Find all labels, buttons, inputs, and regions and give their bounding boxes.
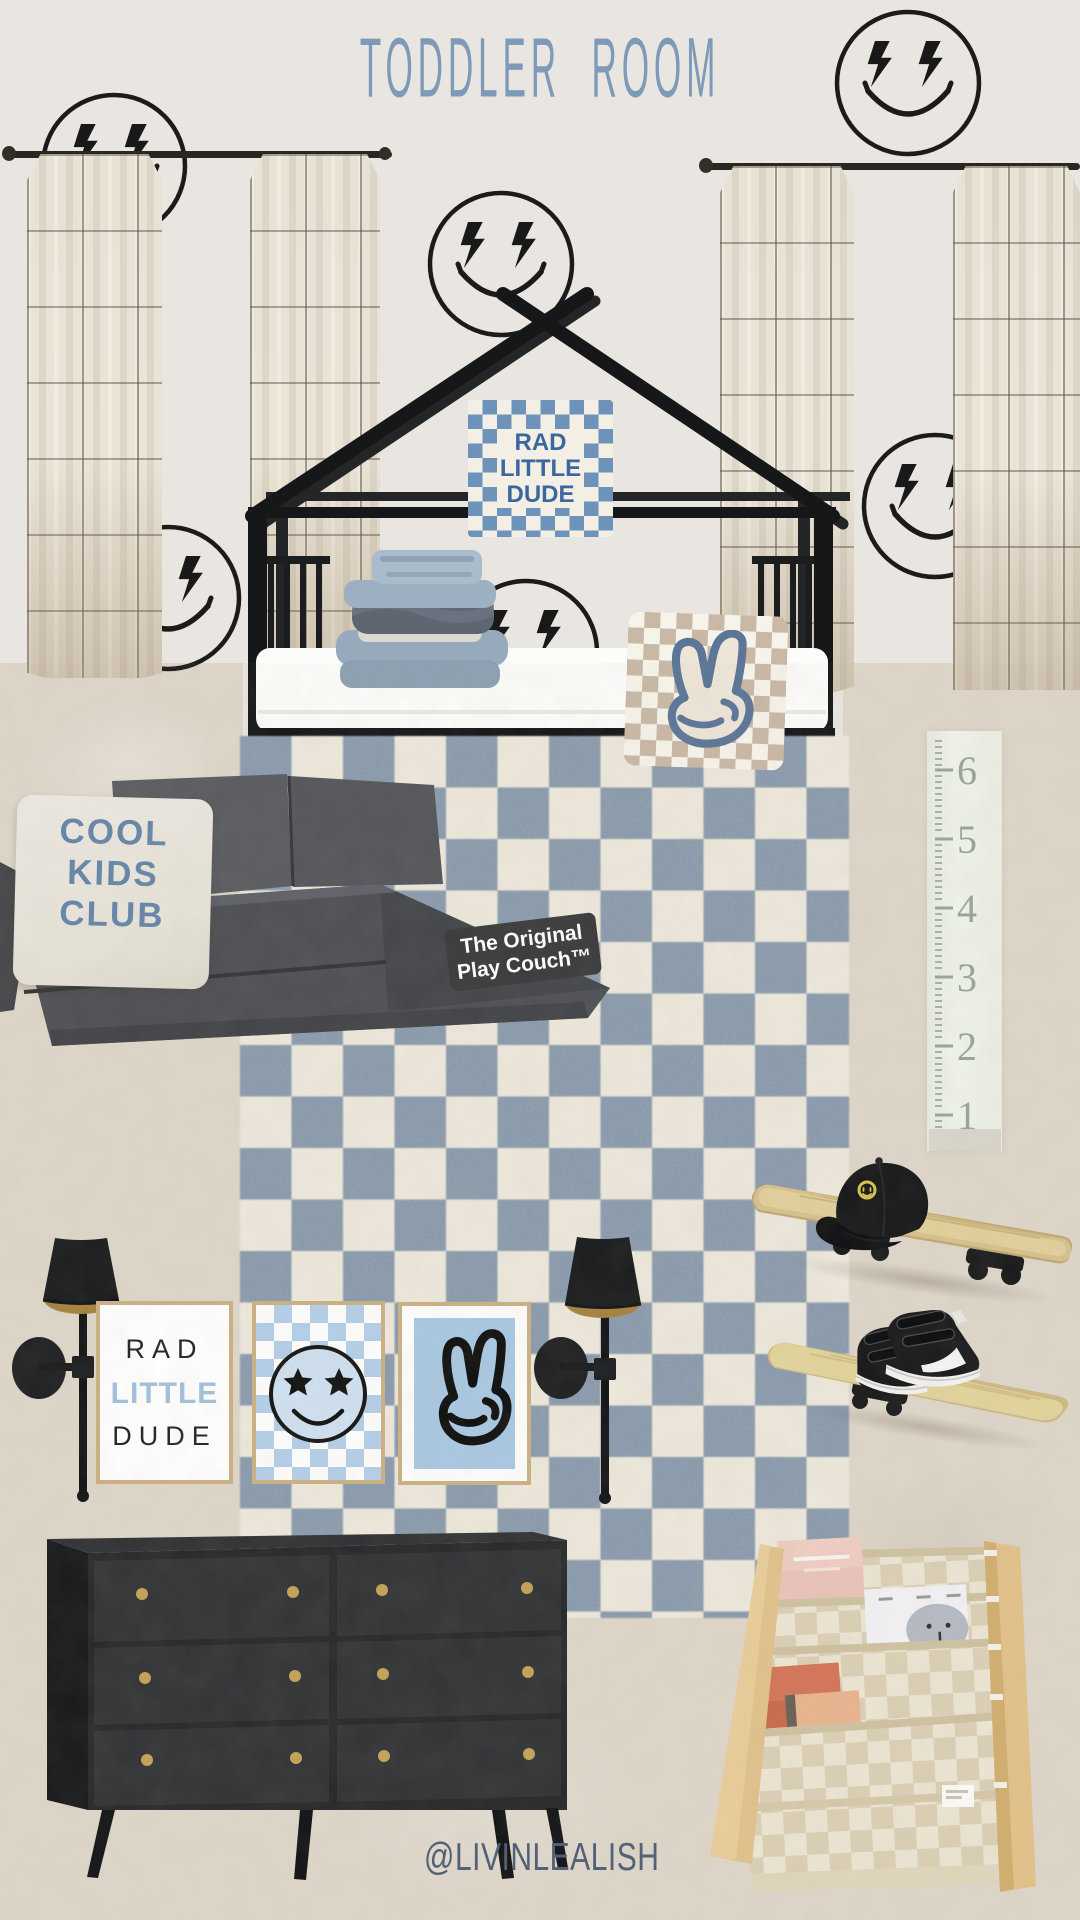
svg-text:3: 3 — [957, 955, 977, 1000]
svg-text:6: 6 — [957, 748, 977, 793]
svg-text:2: 2 — [957, 1024, 977, 1069]
svg-text:5: 5 — [957, 817, 977, 862]
svg-text:4: 4 — [957, 886, 977, 931]
